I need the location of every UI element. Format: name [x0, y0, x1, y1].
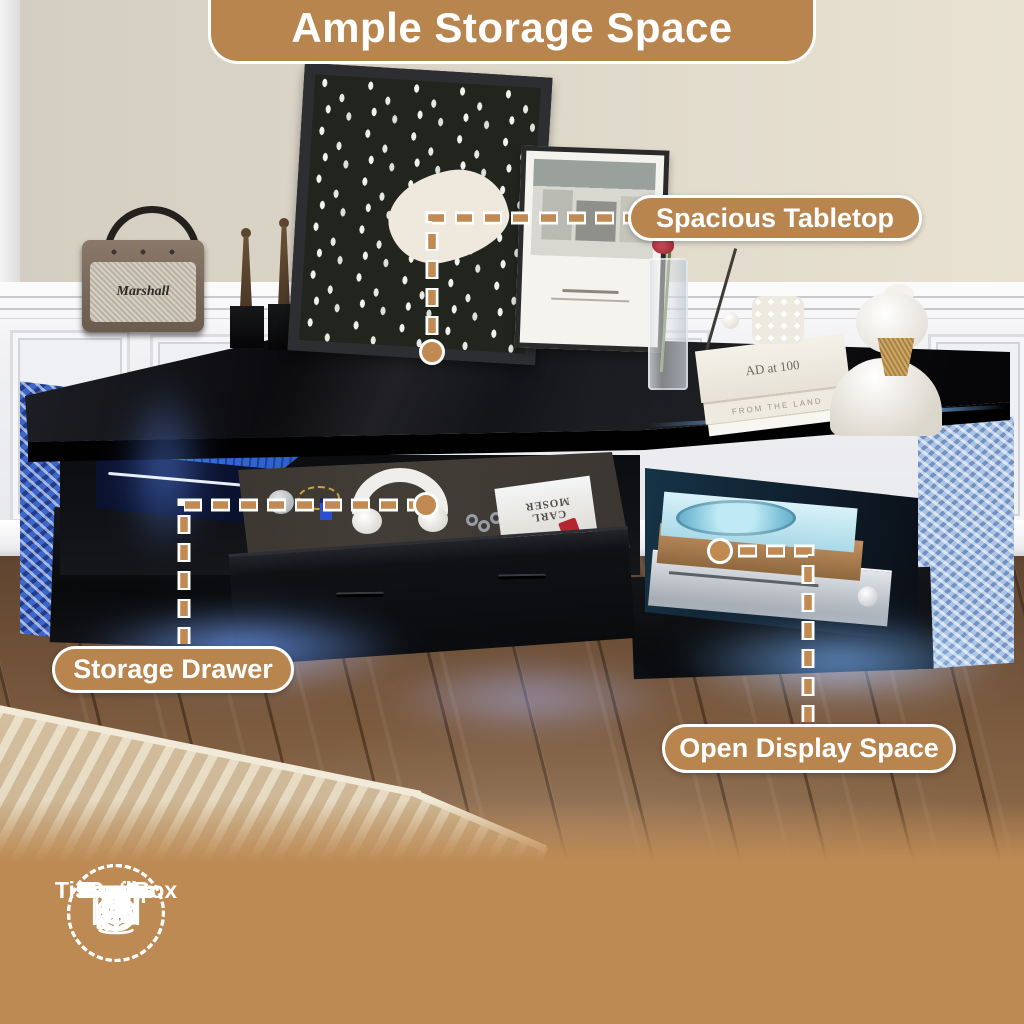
beaded-candle-holder — [752, 296, 804, 344]
speaker-grille: Marshall — [90, 262, 196, 322]
glass-vase — [648, 258, 688, 390]
headphone-earcup — [418, 506, 448, 532]
turntable-platter — [676, 500, 796, 536]
product-infographic: CARL MOSER Marshall AD at 100 FROM THE L… — [0, 0, 1024, 1024]
page-title: Ample Storage Space — [291, 4, 732, 52]
callout-spacious-tabletop: Spacious Tabletop — [628, 195, 922, 241]
callout-label: Spacious Tabletop — [656, 203, 894, 234]
book-cover-title: AD at 100 — [745, 357, 801, 379]
art-print-caption — [552, 298, 629, 303]
led-glow — [670, 616, 1010, 708]
led-glow — [380, 660, 680, 736]
led-glow — [120, 380, 210, 560]
perfume-bottle — [320, 498, 332, 520]
headphone-earcup — [352, 508, 382, 534]
jar — [268, 490, 294, 514]
drawer-handle — [498, 574, 546, 580]
callout-label: Storage Drawer — [73, 654, 273, 685]
callout-open-display-space: Open Display Space — [662, 724, 956, 773]
legend-label: Snacks — [76, 877, 157, 904]
drawer-handle — [336, 592, 384, 598]
callout-label: Open Display Space — [679, 733, 939, 764]
decor-ball — [722, 312, 739, 329]
speaker-knobs — [106, 248, 180, 256]
art-print-frame — [515, 145, 670, 352]
bluetooth-speaker: Marshall — [82, 240, 204, 332]
art-print-caption — [563, 289, 618, 294]
legend-row: Laptop Cups — [0, 864, 1024, 1024]
speaker-logo: Marshall — [117, 284, 170, 300]
necklace — [298, 486, 340, 510]
figurine-base — [230, 306, 264, 348]
callout-storage-drawer: Storage Drawer — [52, 646, 294, 693]
title-banner: Ample Storage Space — [208, 0, 816, 64]
